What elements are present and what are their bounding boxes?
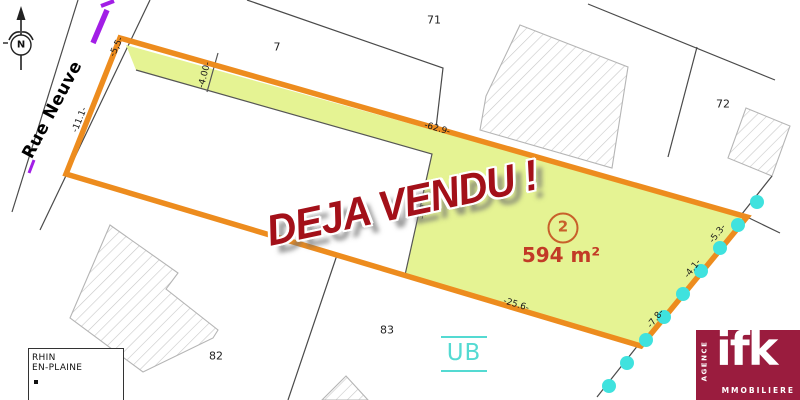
title-block-line: EN-PLAINE bbox=[32, 363, 123, 373]
cadastral-plan: Rue Neuve N -5,5- -11.1- -4.00- -62.9- -… bbox=[0, 0, 800, 400]
building-footprint bbox=[322, 376, 368, 400]
parcel-boundary-line bbox=[288, 255, 337, 400]
logo-agence-label: AGENCE bbox=[700, 341, 708, 382]
title-block: RHIN EN-PLAINE bbox=[28, 348, 124, 400]
logo-brand: ifk bbox=[716, 330, 776, 376]
agency-logo: AGENCE ifk MMOBILIERE bbox=[696, 330, 800, 400]
parcel-boundary-line bbox=[668, 47, 697, 157]
parcel-boundary-line bbox=[747, 217, 780, 233]
parcel-number-label: 7 bbox=[274, 41, 281, 54]
title-block-line: RHIN bbox=[32, 353, 123, 363]
title-block-bullet bbox=[34, 380, 38, 384]
logo-immobiliere-label: MMOBILIERE bbox=[722, 386, 795, 395]
zone-label: UB bbox=[441, 336, 487, 372]
parcel-number-label: 82 bbox=[209, 350, 223, 363]
building-footprint bbox=[728, 108, 790, 176]
parcel-number-label: 83 bbox=[380, 324, 394, 337]
north-arrow-icon bbox=[3, 6, 33, 70]
north-letter: N bbox=[17, 40, 25, 51]
parcel-number-label: 71 bbox=[427, 14, 441, 27]
parcel-number-label: 72 bbox=[716, 98, 730, 111]
lot-area-label: 594 m² bbox=[522, 243, 600, 267]
lot-number-badge: 2 bbox=[548, 213, 579, 244]
